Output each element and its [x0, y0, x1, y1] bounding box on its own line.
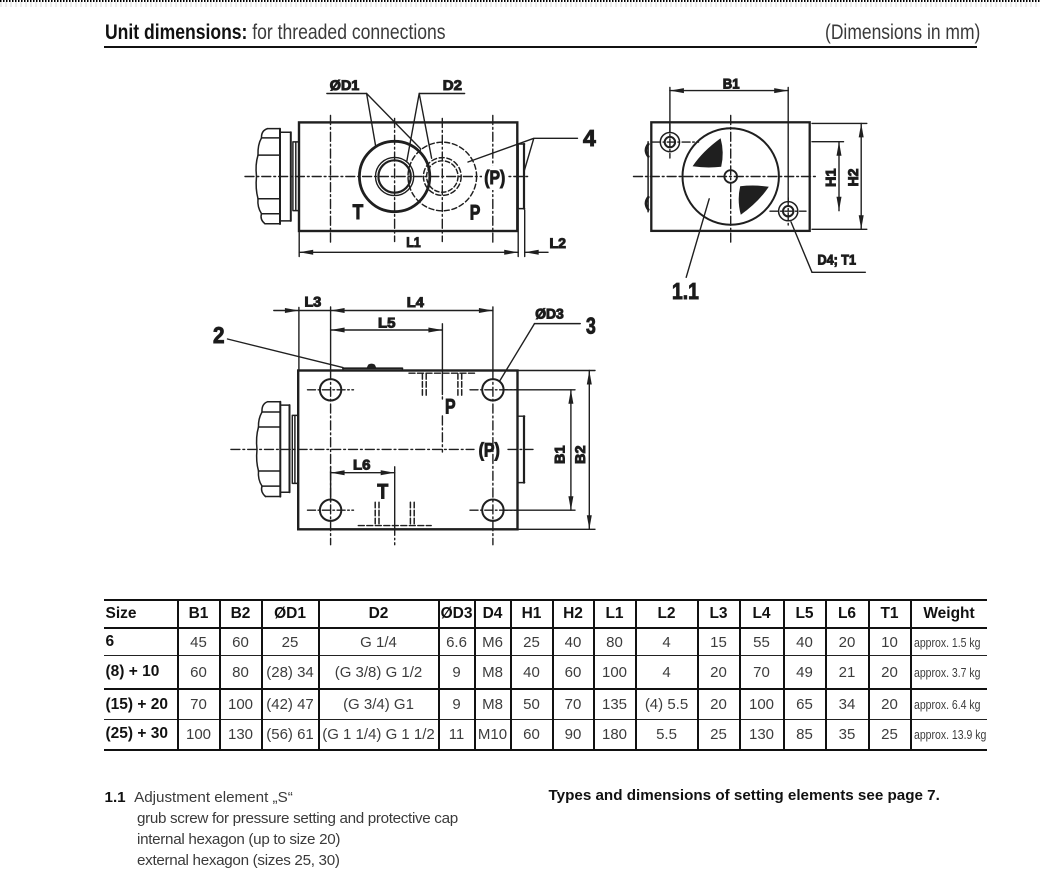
- svg-text:D4; T1: D4; T1: [818, 252, 857, 268]
- svg-text:4: 4: [583, 125, 596, 151]
- svg-text:3: 3: [586, 313, 596, 339]
- svg-text:P: P: [445, 396, 456, 419]
- svg-text:T: T: [353, 201, 364, 224]
- svg-text:(P): (P): [484, 167, 505, 189]
- svg-text:L6: L6: [353, 457, 371, 473]
- svg-text:1.1: 1.1: [672, 278, 699, 304]
- svg-text:L5: L5: [378, 315, 396, 331]
- svg-text:L4: L4: [407, 294, 424, 310]
- svg-text:H1: H1: [823, 168, 839, 187]
- svg-text:L3: L3: [305, 294, 322, 310]
- svg-text:L2: L2: [550, 235, 567, 251]
- svg-text:H2: H2: [845, 168, 861, 186]
- svg-text:B1: B1: [723, 76, 740, 92]
- svg-text:ØD1: ØD1: [330, 77, 360, 93]
- svg-text:(P): (P): [479, 439, 500, 461]
- svg-text:B2: B2: [572, 445, 588, 464]
- svg-text:L1: L1: [406, 234, 421, 250]
- svg-text:D2: D2: [443, 77, 462, 93]
- svg-text:P: P: [470, 202, 481, 225]
- svg-text:ØD3: ØD3: [535, 306, 564, 322]
- svg-text:2: 2: [213, 322, 225, 348]
- svg-text:B1: B1: [552, 445, 568, 464]
- svg-text:T: T: [377, 481, 388, 504]
